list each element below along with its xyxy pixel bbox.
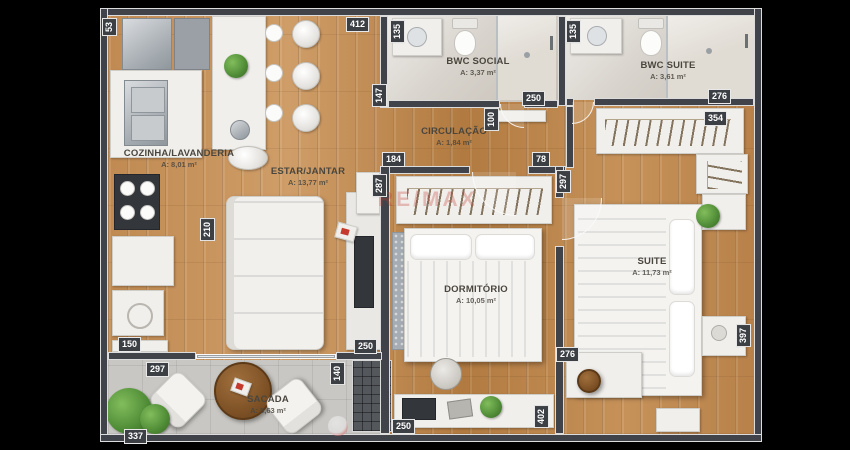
suite-vanity-desk xyxy=(656,408,700,432)
laptop-icon xyxy=(447,398,473,419)
wall-bwc-social-bottom xyxy=(388,100,500,108)
dim-337: 337 xyxy=(124,429,147,444)
room-name: ESTAR/JANTAR xyxy=(260,166,356,177)
room-name: BWC SOCIAL xyxy=(426,56,530,67)
wall-left xyxy=(100,8,108,442)
room-label-suite: SUITE A: 11,73 m² xyxy=(606,256,698,277)
place-setting xyxy=(265,104,283,122)
magazine-logo xyxy=(340,228,349,236)
dim-135-suite: 135 xyxy=(566,20,581,43)
wall-suite-left-b xyxy=(555,246,564,434)
dim-250-desk: 250 xyxy=(392,419,415,434)
dim-397: 397 xyxy=(736,324,751,347)
sink-icon xyxy=(587,26,607,46)
room-label-living: ESTAR/JANTAR A: 13,77 m² xyxy=(260,166,356,187)
island-plant-icon xyxy=(224,54,248,78)
stove-icon xyxy=(114,174,160,230)
wood-stool xyxy=(577,369,601,393)
dim-184: 184 xyxy=(382,152,405,167)
dim-147: 147 xyxy=(372,84,387,107)
bar-stool xyxy=(292,20,320,48)
apartment-floor-plan: RE/MAX COZINHA/LAVANDERIA A: 8,01 m² EST… xyxy=(100,8,762,442)
dim-150: 150 xyxy=(118,337,141,352)
wall-living-bottom-a xyxy=(108,352,196,360)
burner xyxy=(140,181,155,196)
sink-basin xyxy=(131,115,165,141)
room-name: DORMITÓRIO xyxy=(424,284,528,295)
dim-135-social: 135 xyxy=(390,20,405,43)
toilet-icon xyxy=(452,18,478,56)
bar-stool xyxy=(292,62,320,90)
dim-210: 210 xyxy=(200,218,215,241)
sink-icon xyxy=(407,27,427,47)
bar-stool xyxy=(292,104,320,132)
shower-glass xyxy=(666,16,668,98)
dim-140: 140 xyxy=(330,362,345,385)
desk-plant-icon xyxy=(480,396,502,418)
fridge xyxy=(112,236,174,286)
duvet xyxy=(407,261,537,357)
wall-bedroom-top-a xyxy=(388,166,470,174)
room-area: A: 3,61 m² xyxy=(618,72,718,81)
dim-53: 53 xyxy=(102,18,117,36)
shower-drain xyxy=(706,48,712,54)
closet-hangers xyxy=(707,161,742,189)
office-chair xyxy=(430,358,462,390)
room-label-kitchen: COZINHA/LAVANDERIA A: 8,01 m² xyxy=(110,148,248,169)
suite-closet-right xyxy=(696,154,748,194)
watermark-text: RE/MAX xyxy=(378,188,478,212)
toilet-icon xyxy=(638,18,664,56)
pillow xyxy=(475,234,535,260)
place-setting xyxy=(265,24,283,42)
watermark-balloon-logo xyxy=(328,416,348,436)
room-label-balcony: SACADA A: 5,63 m² xyxy=(232,394,304,415)
room-area: A: 3,37 m² xyxy=(426,68,530,77)
shower-area xyxy=(668,16,754,98)
room-label-bwc-suite: BWC SUITE A: 3,61 m² xyxy=(618,60,718,81)
room-area: A: 1,84 m² xyxy=(404,138,504,147)
washer-icon xyxy=(112,290,164,336)
burner xyxy=(120,181,135,196)
island-basin xyxy=(230,120,250,140)
room-area: A: 13,77 m² xyxy=(260,178,356,187)
washer-door xyxy=(127,303,153,329)
room-label-bwc-social: BWC SOCIAL A: 3,37 m² xyxy=(426,56,530,77)
room-name: SACADA xyxy=(232,394,304,405)
dim-412: 412 xyxy=(346,17,369,32)
dim-100: 100 xyxy=(484,108,499,131)
monitor-icon xyxy=(402,398,436,420)
pillow xyxy=(669,301,695,377)
dim-297-suite-entry: 297 xyxy=(556,170,571,193)
burner xyxy=(140,205,155,220)
dim-78: 78 xyxy=(532,152,550,167)
dim-297-balcony: 297 xyxy=(146,362,169,377)
decor-logo xyxy=(235,382,244,390)
room-area: A: 10,05 m² xyxy=(424,296,528,305)
kitchen-sink-icon xyxy=(124,80,168,146)
dim-402: 402 xyxy=(534,405,549,428)
room-label-bedroom: DORMITÓRIO A: 10,05 m² xyxy=(424,284,528,305)
dim-287: 287 xyxy=(372,174,387,197)
dim-276-dorm: 276 xyxy=(556,347,579,362)
dim-250-social: 250 xyxy=(522,91,545,106)
dim-354: 354 xyxy=(704,111,727,126)
laundry-steel-unit xyxy=(122,18,172,70)
room-area: A: 8,01 m² xyxy=(110,160,248,169)
burner xyxy=(120,205,135,220)
pillow xyxy=(410,234,472,260)
lamp-icon xyxy=(711,325,727,341)
dim-250-living: 250 xyxy=(354,339,377,354)
kitchen-dark-cabinet xyxy=(174,18,210,70)
suite-plant-icon xyxy=(696,204,720,228)
wall-between-bathrooms xyxy=(558,16,566,106)
wall-right xyxy=(754,8,762,442)
shower-head-icon xyxy=(550,36,553,50)
room-area: A: 11,73 m² xyxy=(606,268,698,277)
place-setting xyxy=(265,64,283,82)
room-name: BWC SUITE xyxy=(618,60,718,71)
sofa xyxy=(226,196,324,350)
shower-head-icon xyxy=(745,34,748,48)
wall-bottom xyxy=(100,434,762,442)
sink-basin xyxy=(131,87,165,113)
floor-plan-canvas: RE/MAX COZINHA/LAVANDERIA A: 8,01 m² EST… xyxy=(0,0,850,450)
wall-top xyxy=(100,8,762,16)
tv-icon xyxy=(354,236,374,308)
balcony-sliding-door xyxy=(196,354,336,359)
room-area: A: 5,63 m² xyxy=(232,406,304,415)
room-name: SUITE xyxy=(606,256,698,267)
room-name: COZINHA/LAVANDERIA xyxy=(110,148,248,159)
dim-276-suitebath: 276 xyxy=(708,89,731,104)
